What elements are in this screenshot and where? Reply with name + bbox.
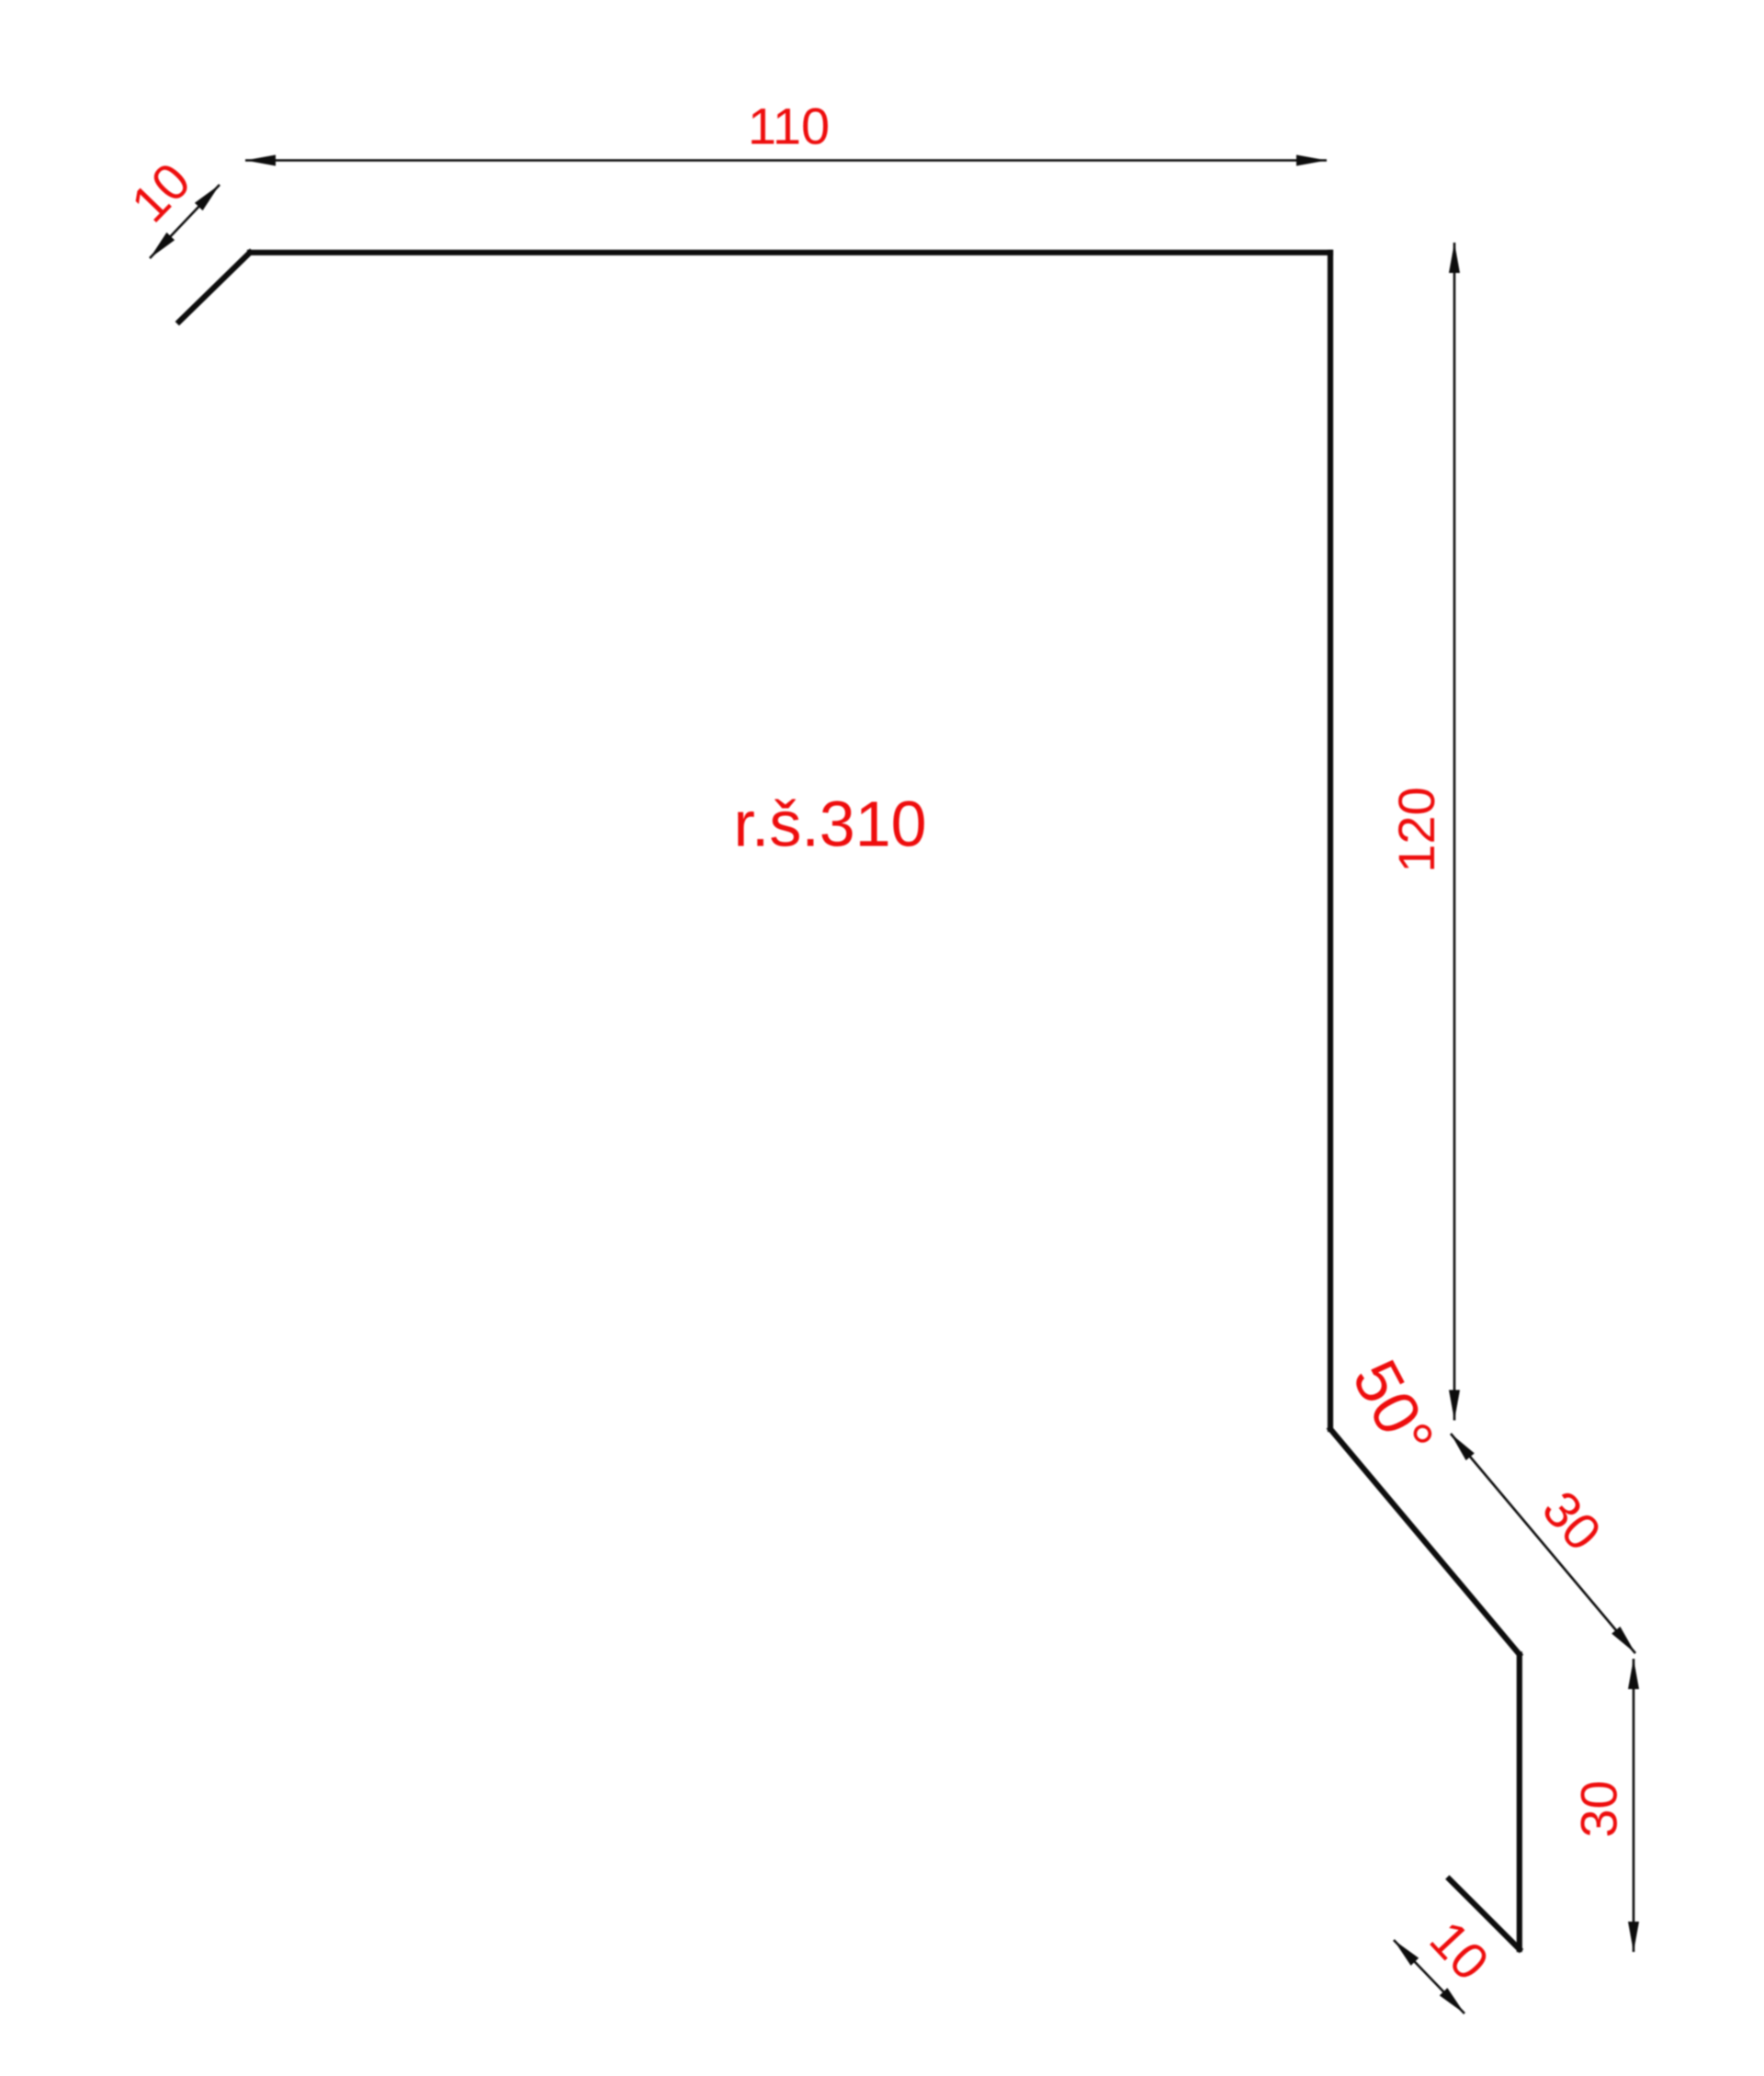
svg-text:r.š.310: r.š.310 (733, 788, 926, 860)
svg-text:120: 120 (1387, 787, 1445, 872)
svg-text:30: 30 (1570, 1780, 1628, 1837)
svg-text:110: 110 (748, 97, 830, 155)
